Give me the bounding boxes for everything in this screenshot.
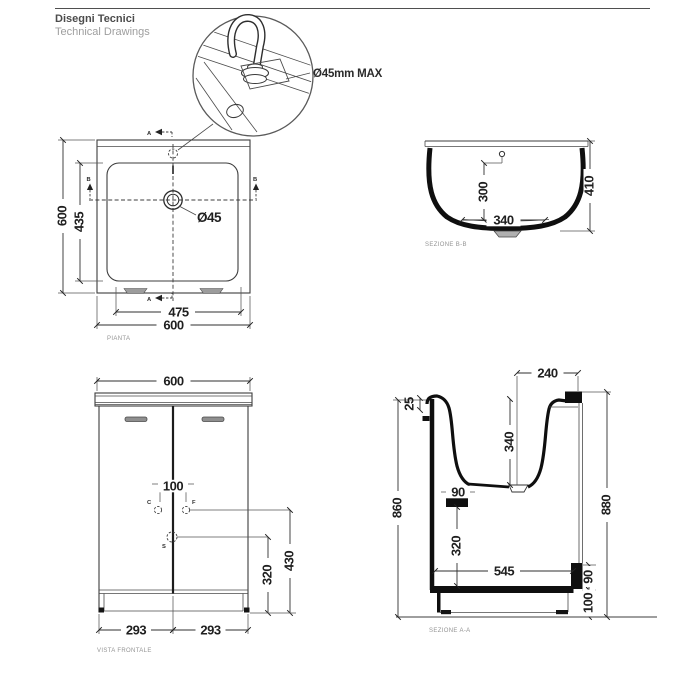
section-bb-label: SEZIONE B-B — [425, 242, 467, 248]
front-width-dim: 600 — [163, 374, 183, 389]
aa-top-offset-dim: 240 — [537, 366, 557, 381]
drain-section — [509, 485, 528, 492]
back-upstand — [565, 392, 582, 404]
front-waste-height-dim: 320 — [260, 565, 275, 585]
front-dimension-lines — [97, 377, 296, 634]
front-view-label: VISTA FRONTALE — [97, 648, 152, 654]
right-foot — [244, 608, 250, 613]
aa-back-clearance-dim: 90 — [581, 570, 596, 584]
front-supply-height-dim: 430 — [282, 551, 297, 571]
aa-inner-depth-dim: 545 — [494, 564, 514, 579]
mark-c-label: C — [147, 500, 152, 506]
section-mark-b-left: B — [87, 177, 94, 199]
aa-front-height-dim: 860 — [390, 498, 405, 518]
tap-size-callout: Ø45mm MAX — [313, 68, 383, 80]
plinth — [99, 594, 250, 613]
aa-right-foot — [556, 610, 568, 614]
aa-back-height-dim: 880 — [599, 495, 614, 515]
front-view: C F S — [95, 374, 297, 655]
drain-spigot — [494, 231, 521, 237]
aa-plinth-height-dim: 100 — [581, 593, 596, 613]
plan-view: Ø45 A A B — [55, 129, 260, 342]
front-spacing-dim: 100 — [163, 479, 183, 494]
aa-basin-depth-dim: 340 — [502, 432, 517, 452]
right-door-handle — [202, 417, 224, 422]
bb-height-dim: 410 — [582, 176, 597, 196]
aa-outlet-height-dim: 320 — [449, 536, 464, 556]
faucet-detail: Ø45mm MAX — [178, 16, 383, 150]
section-aa-label: SEZIONE A-A — [429, 628, 471, 634]
hot-water-point — [182, 506, 189, 513]
front-door-right-dim: 293 — [200, 623, 220, 638]
section-mark-a-top: A — [147, 129, 172, 137]
mark-s-label: S — [162, 544, 166, 550]
bb-depth-dim: 300 — [476, 182, 491, 202]
front-door-left-dim: 293 — [126, 623, 146, 638]
mark-f-label: F — [192, 500, 196, 506]
drain-leader — [179, 206, 196, 215]
mark-b-label: B — [253, 177, 257, 183]
aa-rim-dim: 25 — [402, 397, 417, 411]
tap-hole-section — [423, 416, 430, 421]
section-aa-view: 240 25 860 880 340 90 320 545 90 100 SEZ… — [390, 366, 658, 635]
plan-outer-height-dim: 600 — [55, 206, 70, 226]
drain-size-label: Ø45 — [197, 210, 222, 225]
left-foot — [99, 608, 105, 613]
mark-b-label: B — [87, 177, 91, 183]
cold-water-point — [154, 506, 161, 513]
cabinet-bottom — [430, 586, 574, 593]
plan-inner-height-dim: 435 — [72, 212, 87, 232]
left-door-handle — [125, 417, 147, 422]
basin-back-wall — [528, 400, 567, 487]
section-mark-b-right: B — [253, 177, 259, 199]
mark-a-label: A — [147, 297, 152, 303]
section-bb-view: 300 340 410 SEZIONE B-B — [425, 141, 597, 248]
drawing-canvas: Ø45mm MAX Ø45 A — [0, 0, 700, 700]
plan-dimension-lines — [58, 140, 250, 329]
mark-a-label: A — [147, 131, 152, 137]
technical-drawing-sheet: Disegni Tecnici Technical Drawings — [0, 0, 700, 700]
overflow-ref — [499, 151, 504, 156]
bb-width-dim: 340 — [493, 213, 513, 228]
countertop-front — [95, 393, 252, 406]
plan-label: PIANTA — [107, 336, 130, 342]
section-mark-a-bottom: A — [147, 293, 172, 303]
connection-points: C F S — [147, 500, 196, 550]
plan-outer-width-dim: 600 — [163, 318, 183, 333]
aa-left-foot — [441, 610, 451, 614]
aa-waste-outlet-dim: 90 — [451, 485, 465, 500]
